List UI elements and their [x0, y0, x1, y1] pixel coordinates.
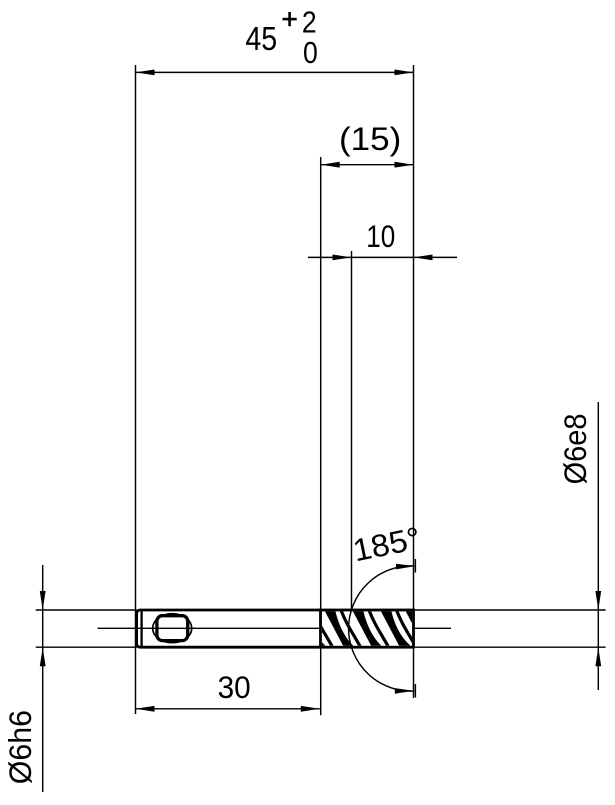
svg-text:2: 2 [302, 4, 317, 39]
svg-text:45: 45 [245, 21, 277, 58]
svg-text:Ø6h6: Ø6h6 [2, 710, 38, 784]
svg-text:0: 0 [303, 35, 318, 70]
svg-text:10: 10 [366, 218, 395, 254]
svg-text:30: 30 [218, 669, 251, 705]
svg-text:Ø6e8: Ø6e8 [557, 413, 593, 484]
svg-text:(15): (15) [339, 121, 401, 157]
